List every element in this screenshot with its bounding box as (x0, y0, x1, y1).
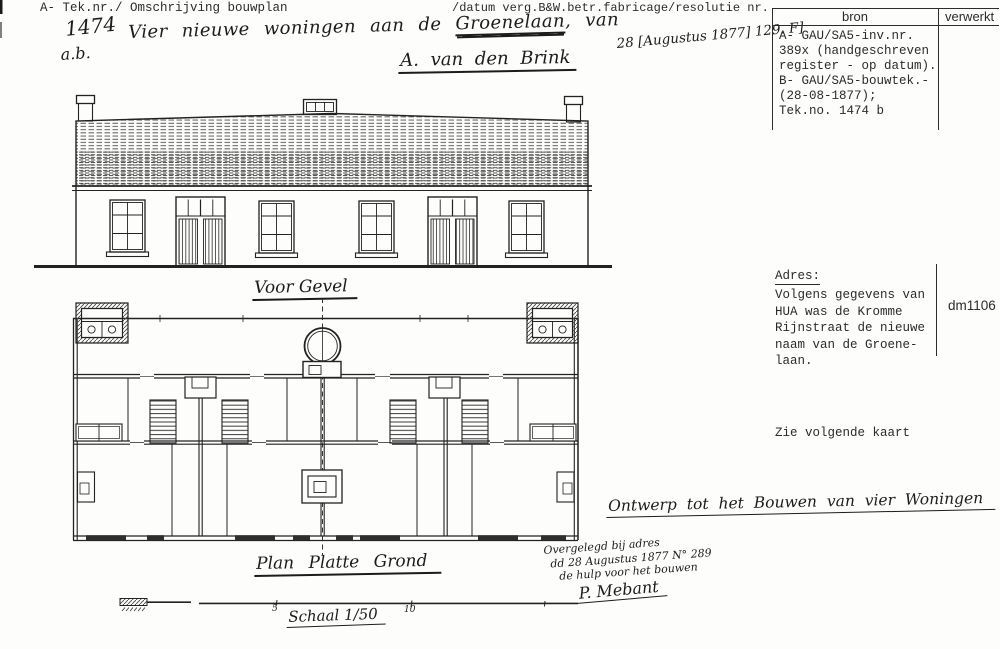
dm-code: dm1106 (948, 298, 996, 313)
tek-number-sub: a.b. (60, 43, 91, 64)
bron-line-4: B- GAU/SA5-bouwtek.- (779, 74, 929, 88)
elevation-doors (176, 197, 477, 266)
plan-stairs (150, 400, 488, 443)
bron-line-6: Tek.no. 1474 b (779, 104, 884, 118)
description-post: , van (565, 9, 619, 31)
description-pre: Vier nieuwe woningen aan de (128, 13, 456, 43)
plan-caption: Plan Platte Grond (254, 551, 442, 577)
bron-line-5: (28-08-1877); (779, 89, 877, 103)
scale-caption: Schaal 1/50 (286, 605, 386, 628)
scale-tick-label-5: 5 (272, 604, 278, 614)
bron-table-divider (938, 8, 939, 130)
adres-line-3: Rijnstraat de nieuwe (775, 321, 925, 335)
plan-privy-left (76, 303, 128, 343)
bron-line-3: register - op datum). (779, 59, 937, 73)
bron-table-left-border (772, 8, 773, 130)
header-left-label: A- Tek.nr./ Omschrijving bouwplan (40, 1, 288, 15)
scan-edge-marks (0, 0, 3, 38)
see-next-card-note: Zie volgende kaart (775, 426, 910, 440)
plan-party-walls (199, 378, 447, 536)
bron-table-header-rule (772, 25, 999, 26)
front-elevation-drawing (34, 96, 612, 267)
bron-line-1: A- GAU/SA5-inv.nr. (779, 29, 914, 43)
adres-divider-line (936, 264, 937, 356)
adres-line-1: Volgens gegevens van (775, 288, 925, 302)
adres-line-2: HUA was de Kromme (775, 305, 903, 319)
scale-tick-label-10: 10 (404, 605, 415, 615)
tek-number: 1474 (64, 12, 117, 41)
elevation-caption: Voor Gevel (252, 276, 358, 301)
approval-note: Overgelegd bij adres dd 28 Augustus 1877… (543, 532, 713, 584)
adres-label: Adres: (775, 269, 820, 285)
adres-line-5: laan. (775, 354, 813, 368)
elevation-windows (107, 200, 548, 258)
bron-line-2: 389x (handgeschreven (779, 44, 929, 58)
plan-window-sills (86, 535, 566, 540)
bron-column-header: bron (772, 9, 938, 24)
archive-card: A- Tek.nr./ Omschrijving bouwplan /datum… (0, 0, 1000, 649)
description-street: Groenelaan (455, 11, 565, 37)
plan-mid-wall (73, 441, 578, 444)
plan-rear-wall (73, 375, 578, 379)
adres-line-4: naam van de Groene- (775, 338, 918, 352)
project-title: Ontwerp tot het Bouwen van vier Woningen (606, 489, 995, 518)
plan-privy-right (527, 303, 578, 343)
verwerkt-column-header: verwerkt (945, 9, 994, 24)
floor-plan-drawing (73, 298, 578, 555)
applicant-name: A. van den Brink (398, 47, 577, 74)
